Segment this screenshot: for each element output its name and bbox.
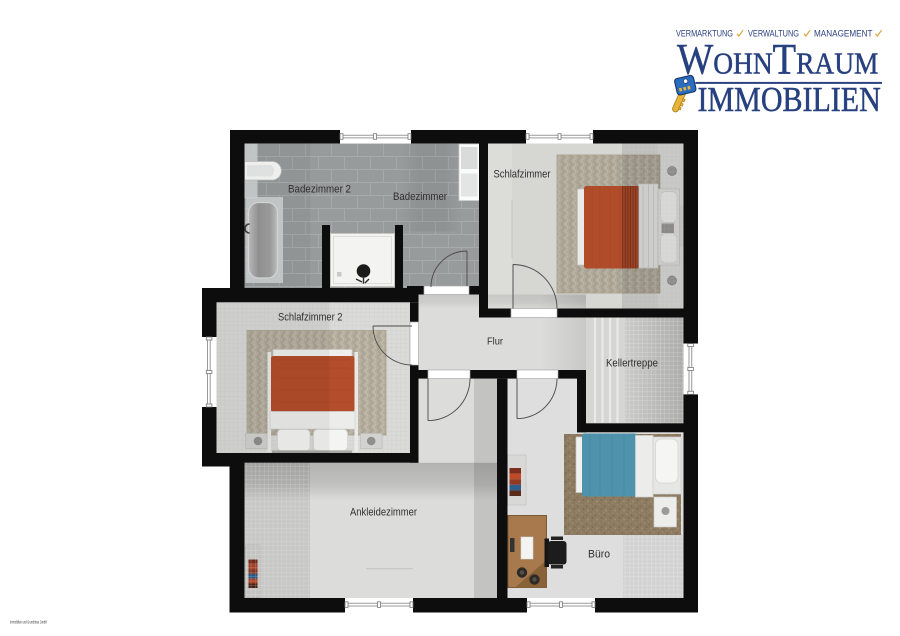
svg-text:Badezimmer 2: Badezimmer 2 (288, 184, 351, 196)
svg-text:Immobilien und Grundrisse GmbH: Immobilien und Grundrisse GmbH (10, 620, 47, 625)
svg-text:Flur: Flur (487, 337, 504, 348)
svg-text:MANAGEMENT: MANAGEMENT (814, 28, 873, 39)
svg-text:WOHNTRAUM: WOHNTRAUM (677, 34, 878, 83)
svg-text:Ankleidezimmer: Ankleidezimmer (350, 507, 417, 519)
svg-text:Kellertreppe: Kellertreppe (606, 358, 658, 370)
svg-text:Badezimmer: Badezimmer (393, 191, 447, 203)
svg-text:Schlafzimmer 2: Schlafzimmer 2 (278, 312, 343, 324)
svg-text:Büro: Büro (588, 549, 610, 561)
svg-text:Schlafzimmer: Schlafzimmer (494, 169, 551, 181)
svg-text:IMMOBILIEN: IMMOBILIEN (698, 80, 881, 118)
